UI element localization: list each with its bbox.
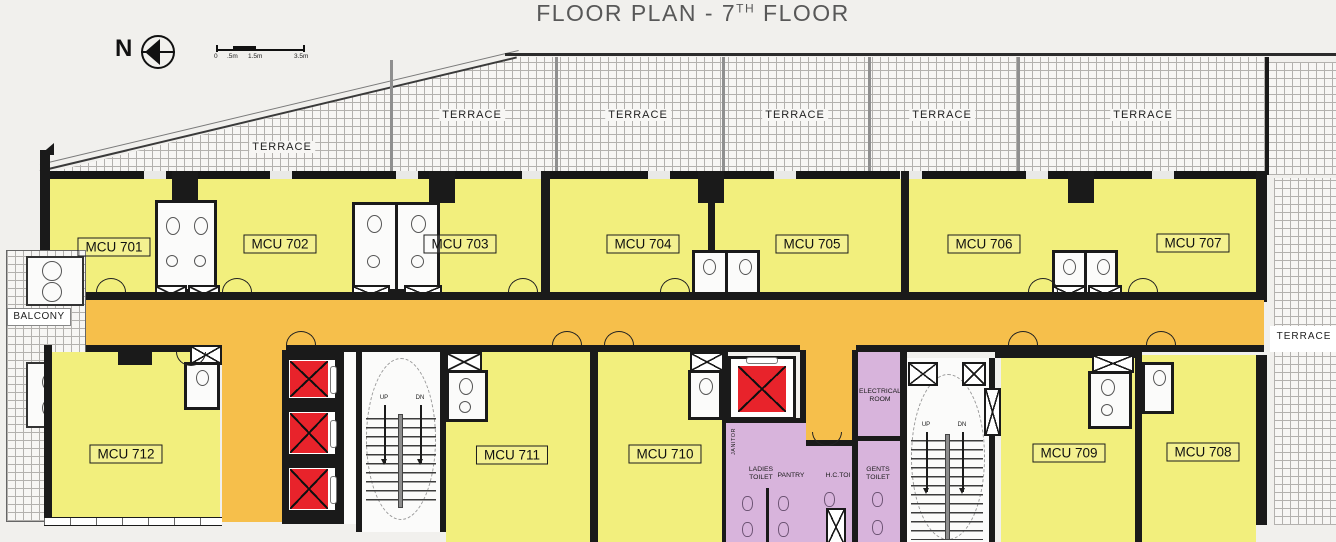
elevator-door-slot xyxy=(330,476,337,504)
title-suffix: FLOOR xyxy=(763,0,850,26)
vent-shaft-icon xyxy=(690,352,724,372)
terrace-label: TERRACE xyxy=(762,109,828,121)
toilet-fixture-icon xyxy=(778,496,789,511)
janitor-label: JANITOR xyxy=(731,428,737,455)
right-exterior-wall-upper xyxy=(1256,171,1267,302)
terrace-divider xyxy=(722,57,725,175)
unit-door xyxy=(1146,331,1176,345)
scale-bar: 0 .5m 1.5m 3.5m xyxy=(216,40,308,64)
vent-shaft-icon xyxy=(826,508,846,542)
service-elevator-car-icon xyxy=(738,366,786,412)
wall xyxy=(726,418,806,423)
service-door xyxy=(812,432,842,446)
unit-door xyxy=(96,278,126,292)
corridor-door xyxy=(286,331,316,345)
north-label: N xyxy=(115,35,132,63)
toilet-fixture-icon xyxy=(778,522,789,537)
balcony-laundry-box xyxy=(26,256,84,306)
toilet-fixture-icon xyxy=(872,520,883,535)
unit-door xyxy=(1028,278,1058,292)
vent-shaft-icon xyxy=(984,388,1001,436)
unit-door xyxy=(552,331,582,345)
bathroom-core-701-702 xyxy=(155,200,217,292)
stairs-down-label: DN xyxy=(416,395,425,401)
corridor-north-wall xyxy=(44,292,1258,300)
wall xyxy=(852,350,858,542)
terrace-divider xyxy=(555,57,558,175)
corridor-branch-middle xyxy=(800,350,856,445)
ladies-toilet-label: TOILET xyxy=(749,474,773,481)
terrace-divider xyxy=(1265,57,1269,175)
elevator-car-icon xyxy=(290,413,328,453)
wall xyxy=(800,350,806,422)
floor-plan-canvas: FLOOR PLAN - 7TH FLOOR N 0 .5m 1.5m 3.5m… xyxy=(0,0,1336,542)
wall xyxy=(44,345,52,525)
stairs-up-label: UP xyxy=(922,422,930,428)
title-prefix: FLOOR PLAN - 7 xyxy=(536,0,736,26)
unit-door xyxy=(604,331,634,345)
toilet-fixture-icon xyxy=(742,522,753,537)
terrace-divider xyxy=(390,60,393,175)
vent-shaft-icon xyxy=(908,362,938,386)
shaft-pillar xyxy=(172,171,198,203)
terrace-divider xyxy=(1017,57,1020,175)
stairs-arrow-icon xyxy=(384,405,386,463)
gents-toilet-label: TOILET xyxy=(866,474,890,481)
unit-divider-wall xyxy=(1135,352,1142,542)
window-sill xyxy=(44,517,222,526)
unit-door xyxy=(222,278,252,292)
elevator-car-icon xyxy=(290,469,328,509)
scale-segment xyxy=(216,49,233,51)
top-terrace-right-corner xyxy=(1268,62,1336,175)
stairs-arrow-icon xyxy=(420,405,422,463)
ladies-toilet-label: LADIES xyxy=(749,466,773,473)
hc-toilet-label: H.C.TOI xyxy=(826,472,851,479)
terrace-label: TERRACE xyxy=(605,109,671,121)
compass-needle-icon xyxy=(145,39,160,65)
page-title: FLOOR PLAN - 7TH FLOOR xyxy=(536,0,850,27)
unit-label-702: MCU 702 xyxy=(243,235,316,254)
unit-door xyxy=(176,352,206,366)
elevator-door-slot xyxy=(330,366,337,394)
unit-label-705: MCU 705 xyxy=(775,235,848,254)
gents-toilet-label: GENTS xyxy=(866,466,889,473)
stairwell-left xyxy=(356,352,446,532)
terrace-label: TERRACE xyxy=(249,141,315,153)
toilet-fixture-icon xyxy=(824,492,835,507)
stairs-down-label: DN xyxy=(958,422,967,428)
scale-tick xyxy=(303,45,305,52)
unit-label-707: MCU 707 xyxy=(1156,234,1229,253)
scale-segment xyxy=(256,49,304,51)
pantry-label: PANTRY xyxy=(778,472,805,479)
wall xyxy=(900,350,907,542)
terrace-label-right: TERRACE xyxy=(1274,331,1335,342)
scale-label-35m: 3.5m xyxy=(294,53,308,60)
bathroom-712 xyxy=(184,362,220,410)
north-arrow-icon: N xyxy=(115,33,195,69)
toilet-fixture-icon xyxy=(742,496,753,511)
electrical-room-label: ELECTRICAL xyxy=(859,388,901,395)
elevator-door-slot xyxy=(330,420,337,448)
terrace-label: TERRACE xyxy=(909,109,975,121)
terrace-label: TERRACE xyxy=(1110,109,1176,121)
unit-label-710: MCU 710 xyxy=(628,445,701,464)
scale-label-15m: 1.5m xyxy=(248,53,262,60)
unit-divider-wall xyxy=(901,171,909,300)
elevator-car-icon xyxy=(290,361,328,397)
bathroom-710 xyxy=(688,370,722,420)
stairs-arrow-icon xyxy=(962,432,964,492)
bathroom-708 xyxy=(1142,362,1174,414)
elevator-lobby-strip xyxy=(344,352,356,524)
stall-wall xyxy=(766,488,769,542)
unit-label-704: MCU 704 xyxy=(606,235,679,254)
stairs-up-label: UP xyxy=(380,395,388,401)
scale-label-0: 0 xyxy=(214,53,218,60)
unit-door xyxy=(508,278,538,292)
unit-door xyxy=(1008,331,1038,345)
corridor-branch-left xyxy=(222,350,286,522)
title-superscript: TH xyxy=(736,1,755,15)
bathroom-711 xyxy=(446,370,488,422)
unit-label-709: MCU 709 xyxy=(1032,444,1105,463)
unit-label-701: MCU 701 xyxy=(77,238,150,257)
unit-divider-wall xyxy=(590,350,598,542)
stairs-arrow-icon xyxy=(926,432,928,492)
elevator-door-slot xyxy=(746,357,778,364)
wall-notch xyxy=(118,345,152,365)
bathroom-709 xyxy=(1088,371,1132,429)
terrace-top-edge xyxy=(505,53,1336,56)
scale-tick xyxy=(216,45,218,52)
unit-label-706: MCU 706 xyxy=(947,235,1020,254)
shaft-pillar xyxy=(429,171,455,203)
wall xyxy=(856,436,904,441)
vent-shaft-icon xyxy=(962,362,986,386)
scale-segment xyxy=(233,46,256,51)
unit-divider-wall xyxy=(541,171,550,300)
toilet-fixture-icon xyxy=(872,492,883,507)
unit-door xyxy=(1128,278,1158,292)
terrace-label: TERRACE xyxy=(439,109,505,121)
terrace-divider xyxy=(868,57,871,175)
shaft-pillar xyxy=(1068,171,1094,203)
vent-shaft-icon xyxy=(446,352,482,372)
unit-label-708: MCU 708 xyxy=(1166,443,1239,462)
main-corridor xyxy=(68,300,1264,350)
unit-door xyxy=(660,278,690,292)
unit-label-703: MCU 703 xyxy=(423,235,496,254)
unit-divider-wall xyxy=(708,171,715,255)
unit-label-711: MCU 711 xyxy=(476,446,548,465)
unit-label-712: MCU 712 xyxy=(89,445,162,464)
electrical-gents-area xyxy=(856,352,904,542)
right-exterior-wall-lower xyxy=(1256,355,1267,525)
electrical-room-label: ROOM xyxy=(869,396,890,403)
balcony-label: BALCONY xyxy=(7,308,71,326)
scale-label-05m: .5m xyxy=(227,53,238,60)
